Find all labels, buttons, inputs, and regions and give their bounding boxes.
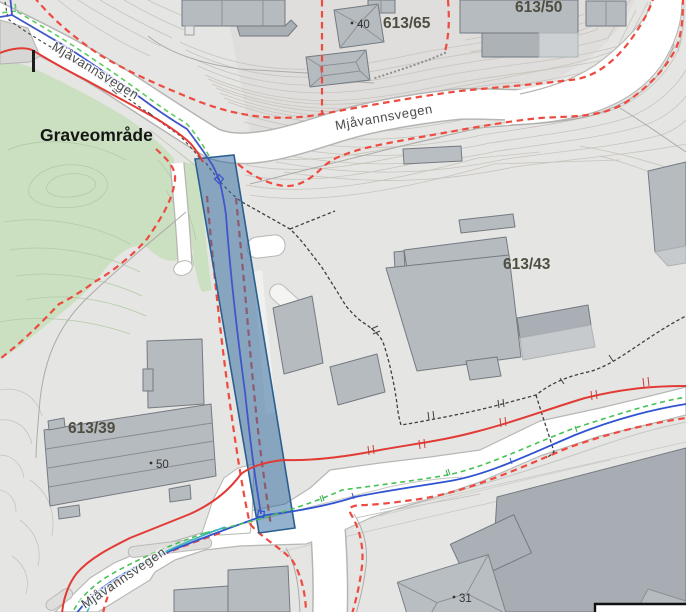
svg-text:613/39: 613/39: [68, 420, 116, 437]
svg-text:40: 40: [357, 19, 370, 31]
svg-text:31: 31: [459, 593, 472, 605]
svg-text:50: 50: [156, 459, 169, 471]
svg-text:Graveområde: Graveområde: [40, 125, 153, 145]
svg-text:613/43: 613/43: [503, 256, 551, 273]
svg-text:613/50: 613/50: [515, 0, 562, 16]
svg-text:613/65: 613/65: [383, 15, 431, 32]
